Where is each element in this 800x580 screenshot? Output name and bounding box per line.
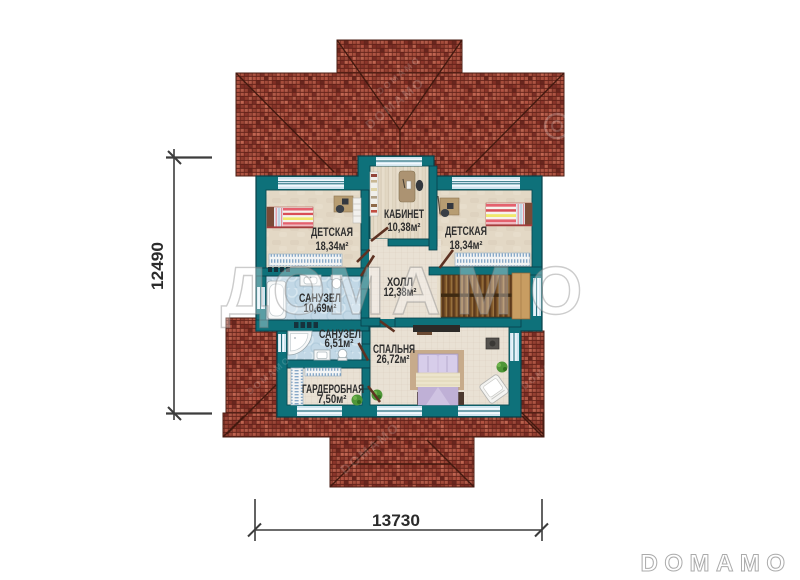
svg-text:О: О <box>530 253 583 329</box>
svg-text:Д: Д <box>221 253 269 329</box>
svg-text:DOMAMO: DOMAMO <box>641 550 792 577</box>
svg-text:12490: 12490 <box>148 242 167 290</box>
svg-text:18,34м²: 18,34м² <box>316 241 349 253</box>
svg-text:М: М <box>456 253 513 329</box>
svg-text:18,34м²: 18,34м² <box>450 240 483 252</box>
svg-text:М: М <box>328 253 385 329</box>
svg-text:А: А <box>391 253 440 329</box>
svg-text:КАБИНЕТ: КАБИНЕТ <box>384 209 424 221</box>
svg-text:ДЕТСКАЯ: ДЕТСКАЯ <box>311 227 353 239</box>
svg-text:О: О <box>273 253 326 329</box>
svg-text:7,50м²: 7,50м² <box>318 394 347 406</box>
svg-text:10,38м²: 10,38м² <box>388 222 421 234</box>
svg-text:ДЕТСКАЯ: ДЕТСКАЯ <box>445 226 487 238</box>
svg-text:26,72м²: 26,72м² <box>377 354 410 366</box>
svg-text:6,51м²: 6,51м² <box>325 338 354 350</box>
svg-text:13730: 13730 <box>372 511 420 530</box>
